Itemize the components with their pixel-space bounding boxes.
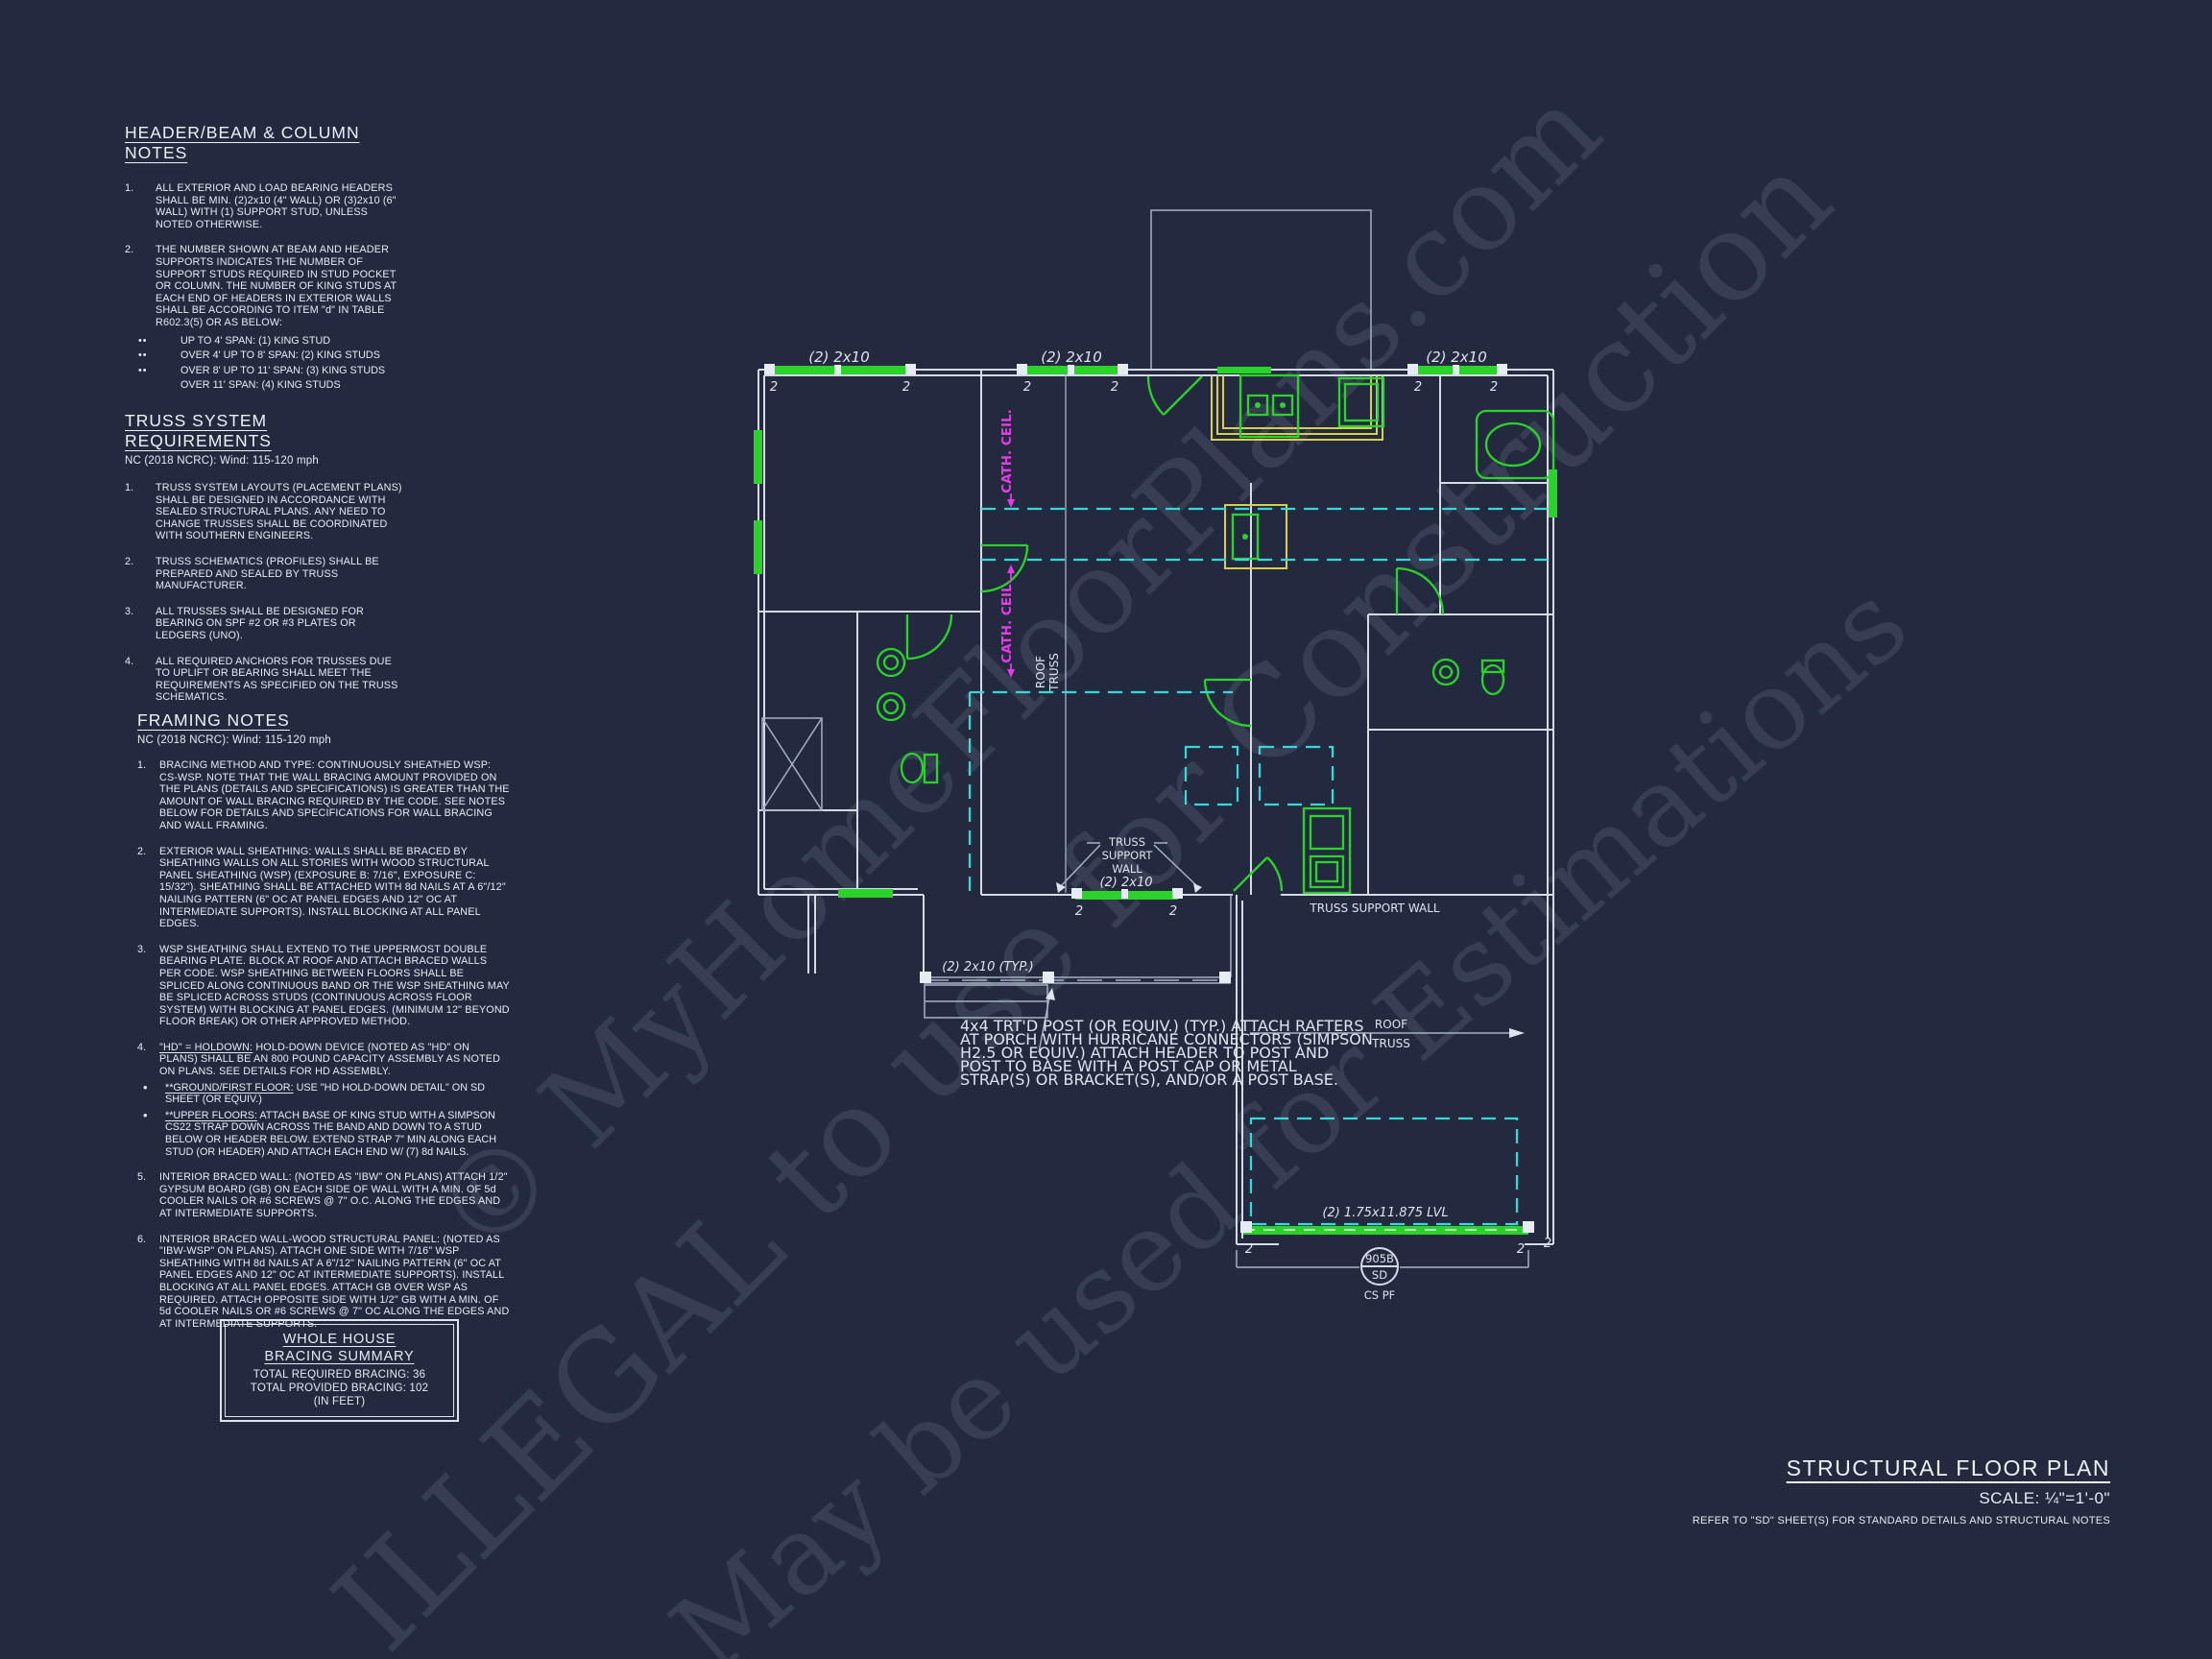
svg-text:2: 2 (1023, 380, 1031, 395)
svg-text:2: 2 (1075, 904, 1083, 919)
detail-bubble: 905B SD CS PF (1361, 1248, 1398, 1302)
stud-count-marks: 2 2 2 2 2 2 2 2 2 2 2 (770, 380, 1551, 1257)
svg-text:2: 2 (1414, 380, 1422, 395)
svg-text:2: 2 (1490, 380, 1498, 395)
header-labels: (2) 2x10 (2) 2x10 (2) 2x10 (2) 2x10 (TYP… (808, 349, 1487, 1220)
detail-sheet: SD (1372, 1268, 1387, 1282)
patio-outline (1151, 210, 1371, 370)
pantry-shelves (1304, 808, 1350, 893)
structural-floor-plan: 905B SD CS PF CATH. CEIL. CATH. CEIL. RO… (0, 0, 2212, 1659)
svg-text:(2) 2x10: (2) 2x10 (1041, 349, 1102, 366)
svg-text:TRUSS: TRUSS (1047, 653, 1061, 692)
cath-ceil-label: CATH. CEIL. (999, 579, 1015, 663)
svg-text:2: 2 (1544, 1237, 1551, 1251)
cathedral-ceiling-labels: CATH. CEIL. CATH. CEIL. (999, 409, 1015, 678)
svg-text:STRAP(S) OR BRACKET(S), AND/OR: STRAP(S) OR BRACKET(S), AND/OR A POST BA… (960, 1070, 1338, 1089)
svg-text:2: 2 (1111, 380, 1118, 395)
svg-text:TRUSS: TRUSS (1371, 1037, 1410, 1050)
svg-text:TRUSS: TRUSS (1108, 835, 1145, 849)
doors (907, 376, 1443, 891)
kitchen (1212, 375, 1383, 568)
svg-text:ROOF: ROOF (1034, 656, 1047, 688)
bathroom-fixtures-left (878, 649, 937, 782)
exterior-walls (758, 370, 1553, 1244)
portal-frame-label: CS PF (1364, 1288, 1396, 1302)
svg-text:2: 2 (1169, 904, 1177, 919)
bathroom-fixtures-right (1433, 411, 1553, 694)
svg-text:(2) 2x10: (2) 2x10 (1426, 349, 1487, 366)
svg-text:WALL: WALL (1112, 862, 1142, 876)
cath-ceil-label: CATH. CEIL. (999, 409, 1015, 493)
lvl-label: (2) 1.75x11.875 LVL (1322, 1206, 1448, 1220)
drawing-sheet: © MyHomeFloorPlans.com ILLEGAL to use fo… (0, 0, 2212, 1659)
svg-text:2: 2 (1245, 1242, 1253, 1257)
truss-support-wall-callout: TRUSS SUPPORT WALL (2) 2x10 (1056, 835, 1202, 893)
porch-header-label: (2) 2x10 (TYP.) (942, 960, 1033, 974)
svg-text:SUPPORT: SUPPORT (1102, 849, 1154, 862)
detail-number: 905B (1365, 1252, 1394, 1265)
roof-truss-label-center: ROOF TRUSS (1034, 653, 1061, 692)
truss-support-wall-label: TRUSS SUPPORT WALL (1309, 902, 1440, 915)
svg-text:2: 2 (770, 380, 778, 395)
svg-text:2: 2 (1517, 1242, 1525, 1257)
svg-text:ROOF: ROOF (1375, 1018, 1407, 1031)
shower-xbox (762, 718, 822, 810)
svg-text:2: 2 (902, 380, 910, 395)
header-bars (764, 364, 1507, 900)
interior-walls (758, 370, 1553, 895)
porch-post-note: 4x4 TRT'D POST (OR EQUIV.) (TYP.) ATTACH… (960, 988, 1373, 1089)
svg-text:(2) 2x10: (2) 2x10 (808, 349, 870, 366)
header-label: (2) 2x10 (1099, 876, 1152, 890)
